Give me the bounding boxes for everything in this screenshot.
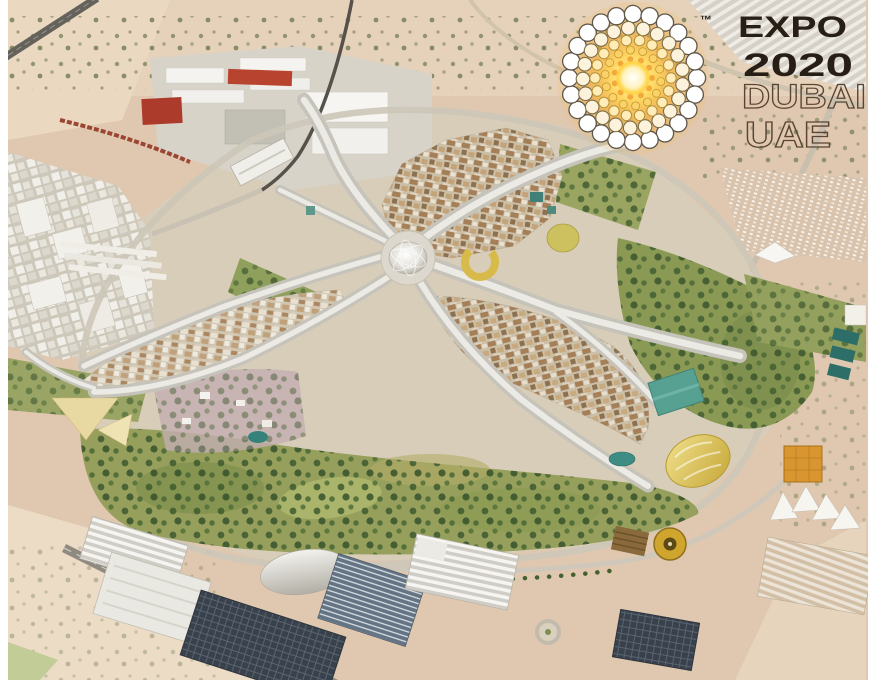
sun-petal-circle	[686, 86, 703, 103]
sun-petal-circle	[622, 21, 636, 35]
sun-petal-circle	[599, 48, 609, 58]
sun-petal-circle	[563, 53, 580, 70]
sun-petal-circle	[599, 97, 609, 107]
sun-petal-circle	[596, 111, 610, 125]
sun-petal-circle	[621, 35, 631, 45]
aerial-render: ™ EXPO 2020 DUBAI UAE	[0, 0, 880, 680]
trademark-symbol: ™	[700, 13, 712, 27]
red-roof-warehouse	[228, 69, 292, 86]
sun-petal-circle	[623, 121, 637, 135]
sun-petal-circle	[585, 100, 599, 114]
sun-petal-circle	[608, 8, 625, 25]
sun-petal-circle	[644, 98, 652, 106]
yellow-round-pavilion	[547, 224, 579, 252]
sun-petal-circle	[656, 65, 664, 73]
sun-petal-circle	[615, 50, 623, 58]
sun-petal-circle	[639, 48, 647, 56]
sun-petal-circle	[638, 120, 652, 134]
sun-petal-circle	[634, 35, 644, 45]
al-wasl-dome	[381, 231, 435, 285]
sun-petal-circle	[626, 46, 634, 54]
sun-petal-circle	[560, 69, 577, 86]
sun-petal-circle	[632, 102, 640, 110]
logo-text-uae: UAE	[745, 114, 831, 155]
sun-petal-circle	[664, 60, 674, 70]
sun-petal-circle	[676, 63, 690, 77]
logo-text-expo: EXPO	[738, 11, 847, 44]
sun-petal-circle	[609, 118, 623, 132]
teal-tower	[530, 192, 543, 202]
sun-petal-circle	[592, 60, 602, 70]
sun-petal-circle	[652, 89, 660, 97]
sun-petal-circle	[688, 69, 705, 86]
sun-petal-circle	[602, 83, 610, 91]
sun-petal-circle	[592, 14, 609, 31]
sun-petal-circle	[650, 27, 664, 41]
sun-petal-circle	[624, 133, 641, 150]
sun-petal-circle	[634, 110, 644, 120]
sun-petal-circle	[576, 72, 590, 86]
sun-petal-circle	[641, 131, 658, 148]
sun-petal-circle	[606, 59, 614, 67]
sun-petal-circle	[609, 93, 617, 101]
pond	[248, 431, 268, 443]
sun-petal-circle	[619, 100, 627, 108]
sun-petal-circle	[621, 110, 631, 120]
sun-petal-circle	[657, 97, 667, 107]
sun-petal-circle	[592, 86, 602, 96]
sun-petal-circle	[647, 106, 657, 116]
right-margin	[868, 0, 880, 680]
sun-petal-circle	[636, 22, 650, 36]
sun-petal-circle	[664, 86, 674, 96]
sun-petal-circle	[649, 55, 657, 63]
sun-petal-circle	[624, 5, 641, 22]
sun-petal-circle	[594, 33, 608, 47]
expo-2020-aerial-screenshot: ™ EXPO 2020 DUBAI UAE	[0, 0, 880, 680]
sun-petal-circle	[578, 57, 592, 71]
sun-petal-circle	[601, 70, 609, 78]
sun-core	[615, 60, 651, 96]
sun-petal-circle	[647, 40, 657, 50]
sun-petal-circle	[607, 25, 621, 39]
sun-petal-circle	[676, 78, 690, 92]
sun-petal-circle	[590, 73, 600, 83]
sun-petal-circle	[672, 92, 686, 106]
sun-petal-circle	[657, 48, 667, 58]
sun-petal-circle	[579, 87, 593, 101]
sun-petal-circle	[609, 106, 619, 116]
red-building	[141, 97, 182, 125]
lagoon	[609, 452, 635, 466]
logo-text-dubai: DUBAI	[742, 78, 866, 116]
sun-petal-circle	[671, 49, 685, 63]
orange-cube-pavilion	[784, 446, 822, 482]
sun-petal-circle	[608, 131, 625, 148]
sun-petal-circle	[569, 101, 586, 118]
sun-petal-circle	[609, 40, 619, 50]
sun-petal-circle	[563, 86, 580, 103]
sun-petal-circle	[657, 78, 665, 86]
left-margin	[0, 0, 8, 680]
sun-petal-circle	[584, 44, 598, 58]
sun-petal-circle	[666, 73, 676, 83]
sun-petal-circle	[662, 37, 676, 51]
